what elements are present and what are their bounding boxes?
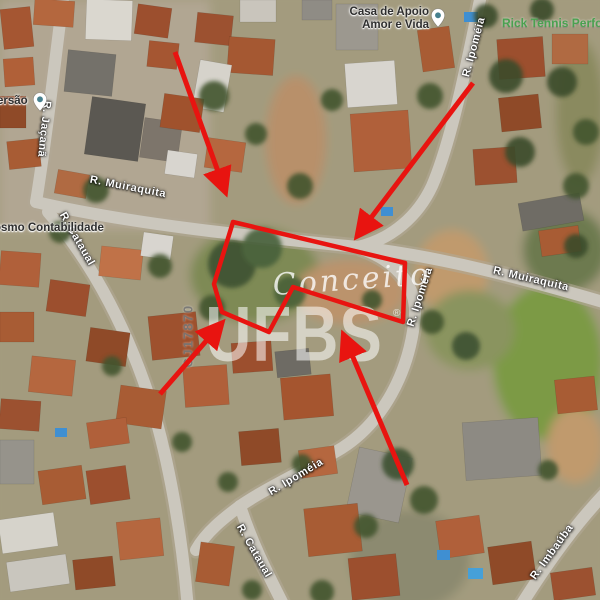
poi-label-ersao[interactable]: ersão	[0, 95, 28, 107]
poi-label-casa-line1: Casa de Apoio	[350, 6, 429, 19]
map-pin-icon[interactable]	[430, 8, 446, 28]
poi-label-casa-de-apoio[interactable]: Casa de Apoio Amor e Vida	[350, 6, 429, 31]
watermark-agency: UFBS	[205, 295, 382, 373]
watermark-registered-mark: ®	[393, 308, 400, 319]
poi-label-contabilidade[interactable]: osmo Contabilidade	[0, 222, 104, 234]
watermark-code: CJ17870	[181, 304, 196, 367]
map-pin-icon[interactable]	[32, 92, 48, 112]
poi-label-casa-line2: Amor e Vida	[350, 19, 429, 32]
satellite-map-screenshot: R. Muiraquita R. Muiraquita R. Jaçanã R.…	[0, 0, 600, 600]
poi-label-rick-tennis[interactable]: Rick Tennis Perfor	[502, 16, 600, 30]
